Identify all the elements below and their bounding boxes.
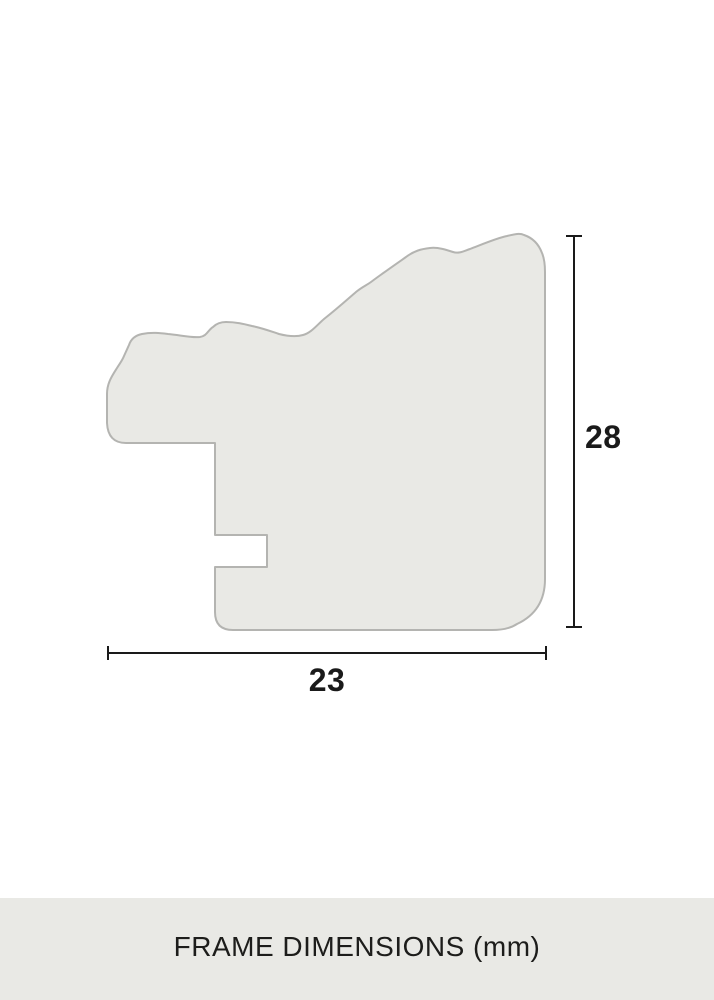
diagram-canvas: 28 23 FRAME DIMENSIONS (mm) <box>0 0 714 1000</box>
width-dimension-value: 23 <box>287 664 367 696</box>
height-dimension-value: 28 <box>585 421 622 453</box>
frame-profile-diagram <box>0 0 714 1000</box>
caption-bar: FRAME DIMENSIONS (mm) <box>0 898 714 1000</box>
width-dimension-line <box>108 646 546 660</box>
frame-profile-shape <box>107 234 545 630</box>
height-dimension-line <box>566 236 582 627</box>
caption-text: FRAME DIMENSIONS (mm) <box>174 931 541 963</box>
